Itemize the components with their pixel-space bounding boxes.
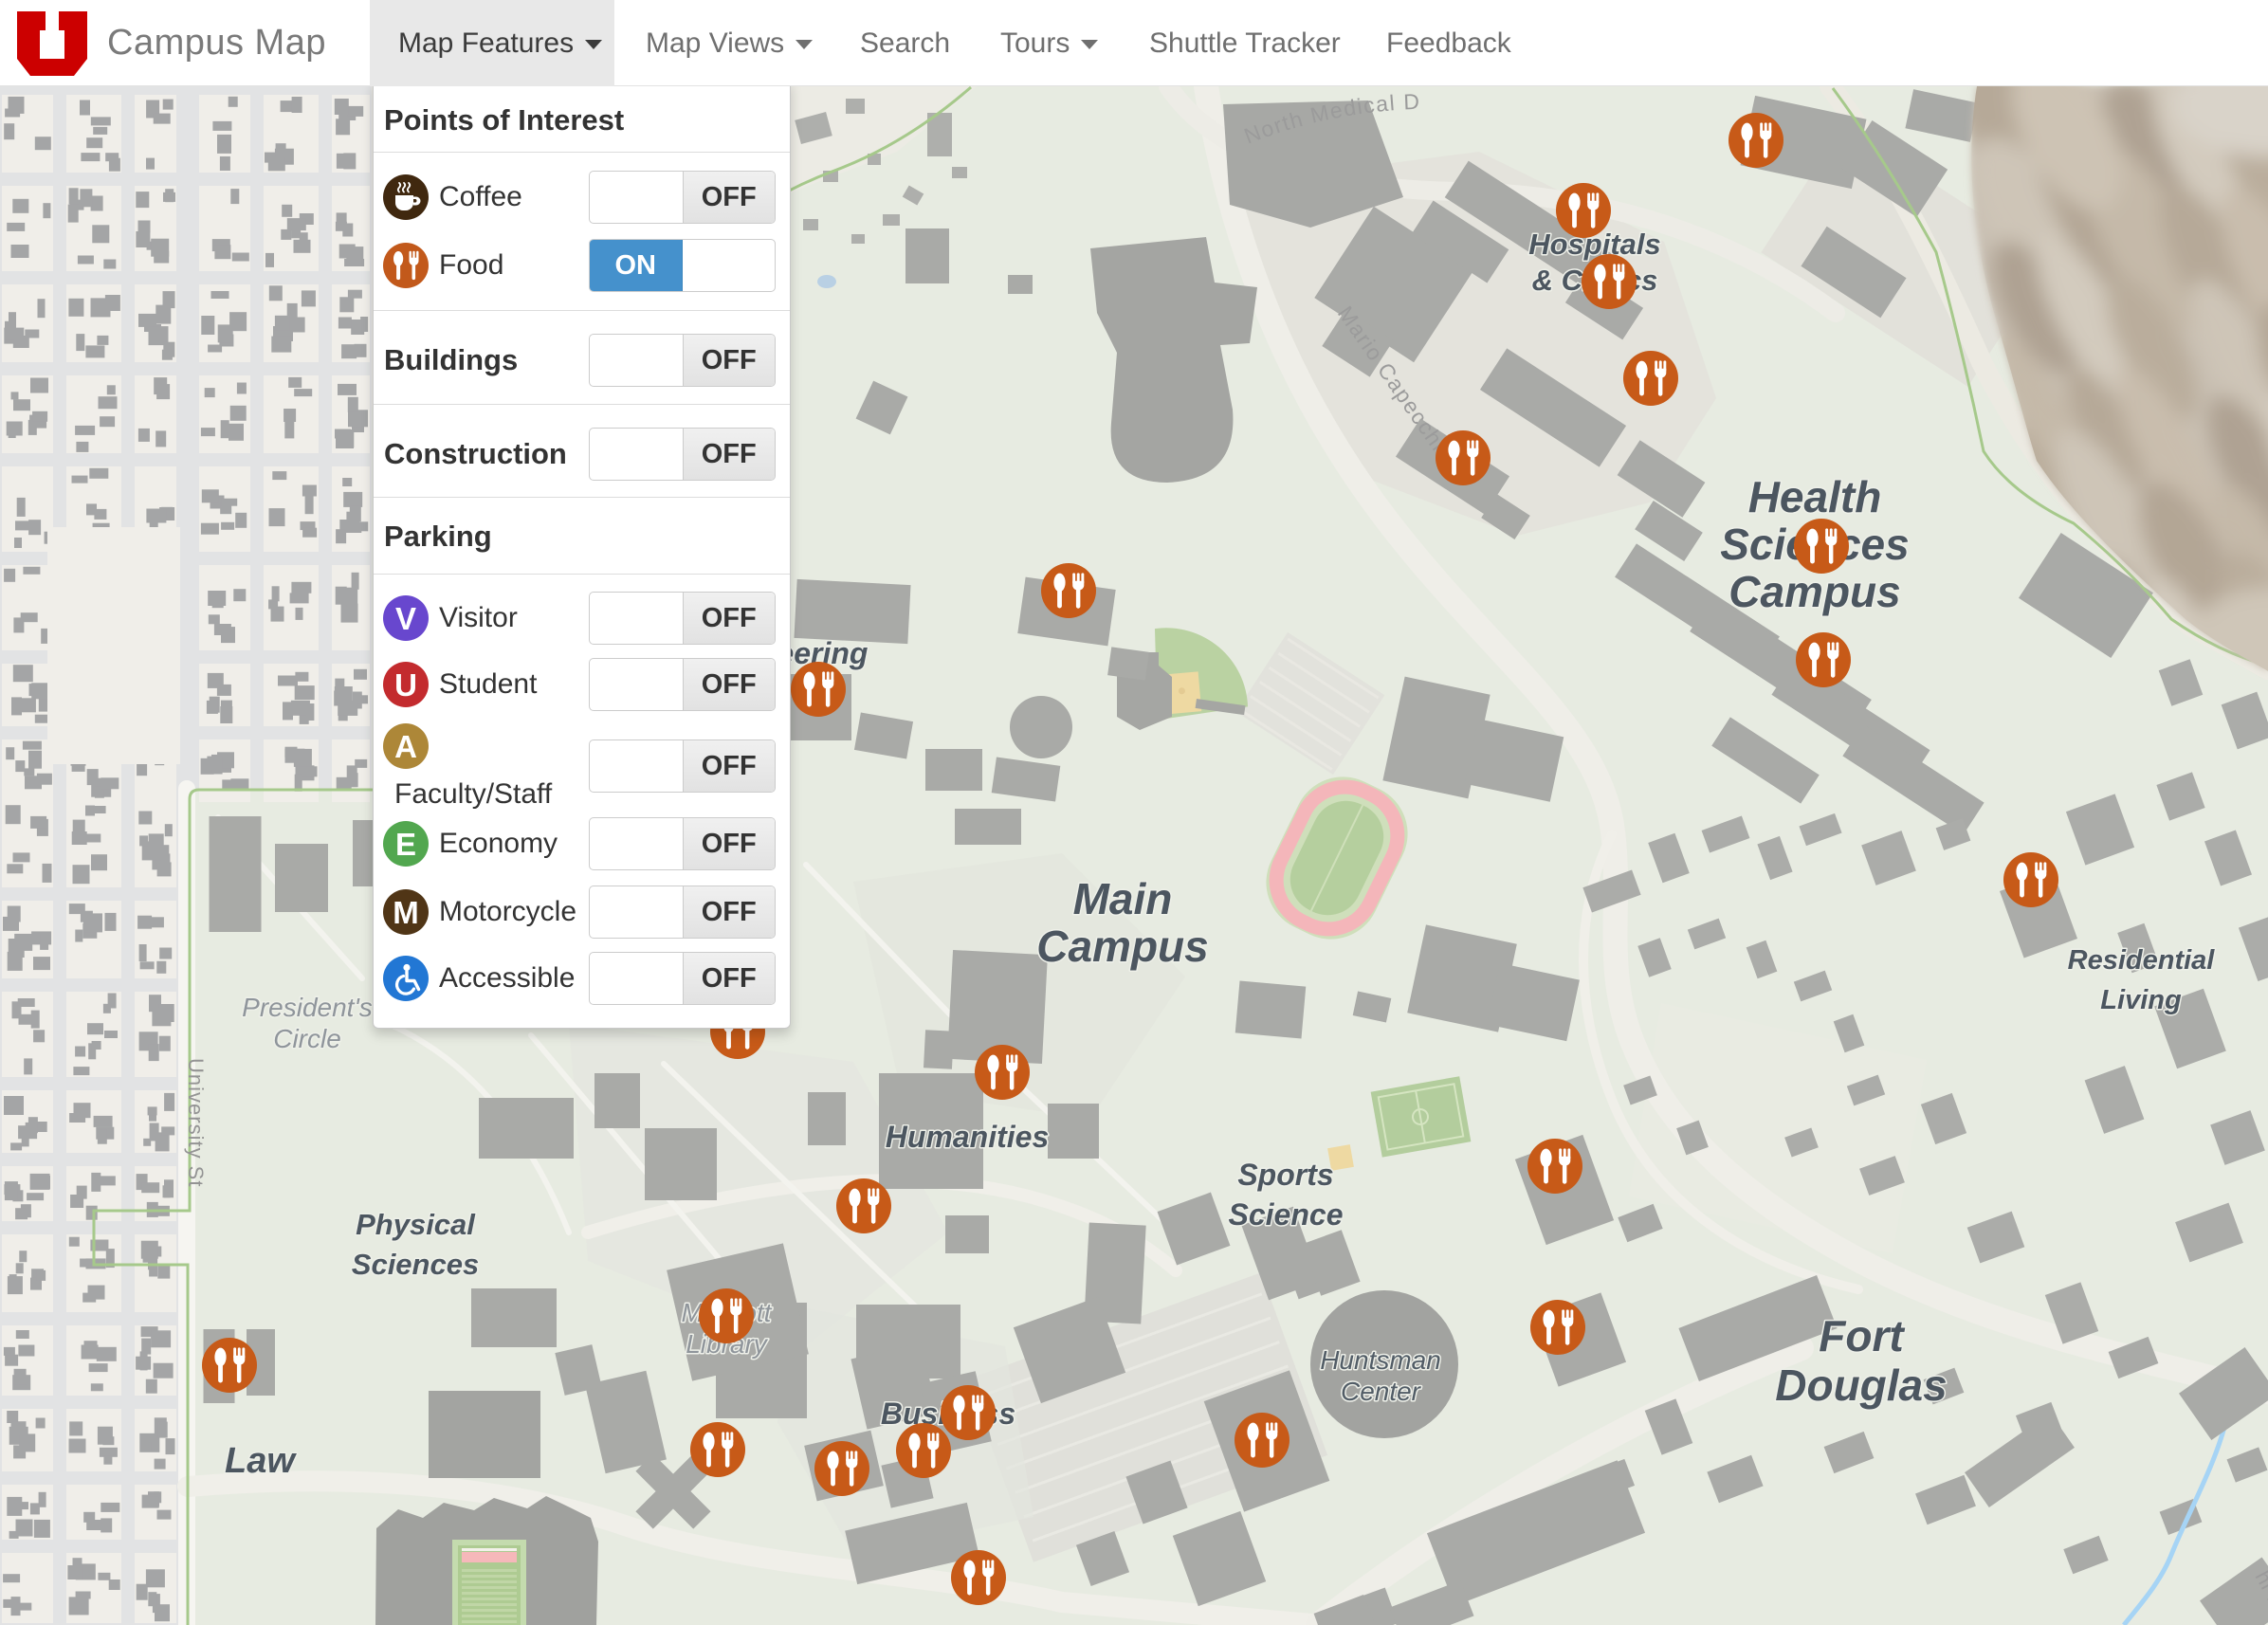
svg-text:A: A [394, 729, 417, 764]
svg-text:Law: Law [225, 1441, 297, 1481]
svg-text:University St: University St [184, 1058, 208, 1187]
svg-text:M: M [393, 895, 419, 930]
svg-text:E: E [395, 827, 416, 862]
svg-text:U: U [394, 667, 417, 703]
svg-text:V: V [395, 601, 416, 636]
svg-text:Humanities: Humanities [886, 1120, 1049, 1154]
